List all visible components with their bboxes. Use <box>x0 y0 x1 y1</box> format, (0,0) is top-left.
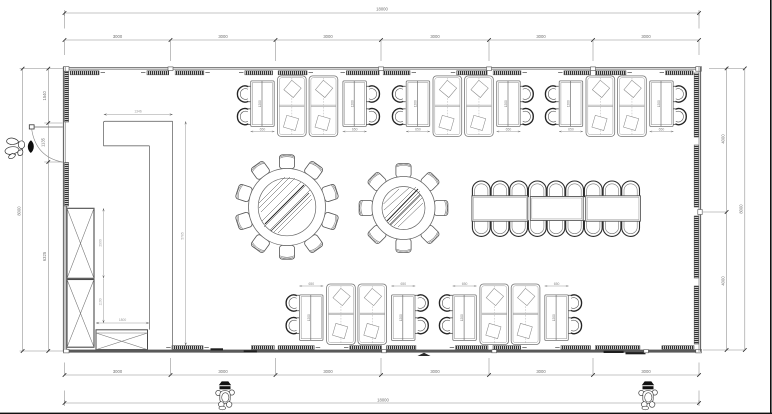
svg-text:3000: 3000 <box>641 369 651 374</box>
svg-text:3000: 3000 <box>218 369 228 374</box>
svg-text:4000: 4000 <box>720 276 725 286</box>
svg-text:3000: 3000 <box>113 369 123 374</box>
svg-text:3000: 3000 <box>536 369 546 374</box>
svg-text:18000: 18000 <box>377 398 389 403</box>
svg-text:3000: 3000 <box>536 34 546 39</box>
svg-text:3000: 3000 <box>113 34 123 39</box>
svg-text:8000: 8000 <box>17 206 22 216</box>
svg-text:5785: 5785 <box>181 232 185 240</box>
svg-text:18000: 18000 <box>376 7 388 12</box>
svg-text:2900: 2900 <box>98 239 102 247</box>
svg-text:8000: 8000 <box>739 204 744 214</box>
svg-text:3000: 3000 <box>323 34 333 39</box>
svg-text:1346: 1346 <box>134 110 142 114</box>
svg-text:1100: 1100 <box>98 298 102 305</box>
svg-text:1135: 1135 <box>41 137 46 147</box>
svg-text:3000: 3000 <box>430 34 440 39</box>
svg-text:3000: 3000 <box>323 369 333 374</box>
svg-text:1800: 1800 <box>119 318 127 322</box>
svg-text:1540: 1540 <box>42 90 47 100</box>
svg-text:3000: 3000 <box>430 369 440 374</box>
svg-text:3000: 3000 <box>218 34 228 39</box>
svg-text:4000: 4000 <box>720 134 725 144</box>
svg-text:3000: 3000 <box>641 34 651 39</box>
svg-text:6325: 6325 <box>42 251 47 261</box>
